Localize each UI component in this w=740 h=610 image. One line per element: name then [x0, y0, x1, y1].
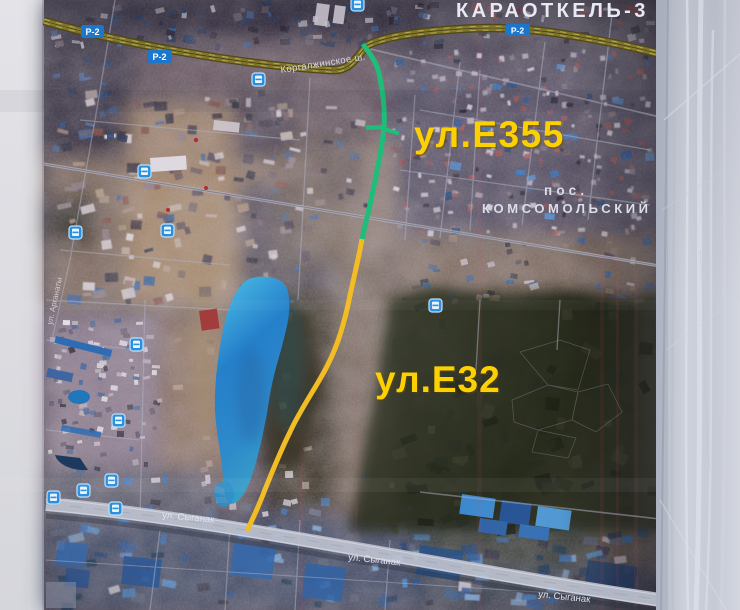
- svg-text:Р-2: Р-2: [152, 52, 166, 62]
- svg-text:Р-2: Р-2: [511, 26, 525, 36]
- svg-text:Р-2: Р-2: [85, 27, 99, 37]
- svg-text:КОМСОМОЛЬСКИЙ: КОМСОМОЛЬСКИЙ: [482, 201, 652, 216]
- svg-text:ул.Е355: ул.Е355: [414, 114, 565, 155]
- svg-text:пос.: пос.: [544, 183, 588, 198]
- svg-text:КАРАОТКЕЛЬ-3: КАРАОТКЕЛЬ-3: [456, 0, 649, 22]
- svg-text:ул.Е32: ул.Е32: [375, 359, 501, 400]
